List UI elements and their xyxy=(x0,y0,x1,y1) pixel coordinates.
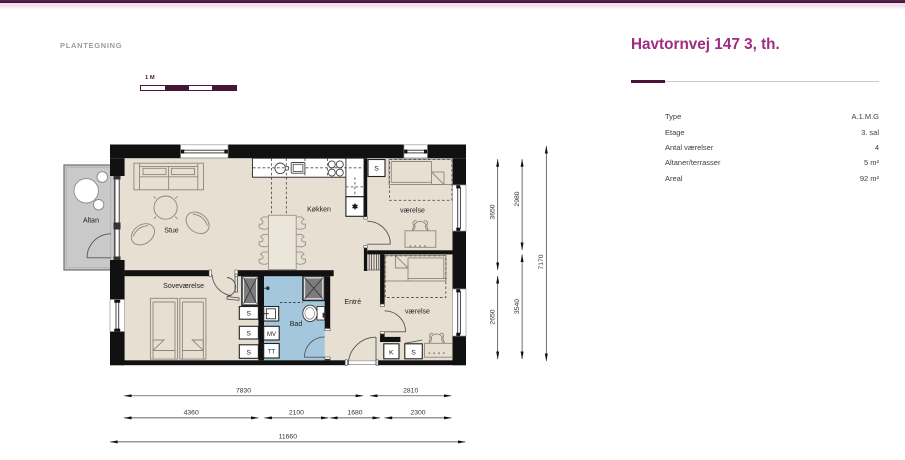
svg-text:Entré: Entré xyxy=(344,299,361,306)
svg-text:1680: 1680 xyxy=(347,409,362,416)
svg-text:Køkken: Køkken xyxy=(307,206,331,213)
svg-text:S: S xyxy=(374,166,379,173)
svg-text:7170: 7170 xyxy=(538,254,545,269)
svg-text:S: S xyxy=(247,331,252,338)
svg-text:Stue: Stue xyxy=(164,228,179,235)
svg-text:2100: 2100 xyxy=(289,409,304,416)
svg-text:7830: 7830 xyxy=(236,387,251,394)
svg-text:11660: 11660 xyxy=(279,433,298,440)
svg-text:Altan: Altan xyxy=(83,217,99,224)
svg-text:3540: 3540 xyxy=(514,299,521,314)
svg-text:3650: 3650 xyxy=(490,204,497,219)
svg-text:2810: 2810 xyxy=(403,387,418,394)
svg-text:værelse: værelse xyxy=(405,309,430,316)
svg-text:2980: 2980 xyxy=(514,191,521,206)
svg-text:MV: MV xyxy=(267,332,276,338)
svg-text:Soveværelse: Soveværelse xyxy=(163,283,204,290)
svg-text:S: S xyxy=(247,311,252,318)
svg-text:TT: TT xyxy=(268,350,276,356)
svg-text:K: K xyxy=(389,349,394,356)
svg-text:2300: 2300 xyxy=(410,409,425,416)
svg-text:S: S xyxy=(247,349,252,356)
svg-text:4360: 4360 xyxy=(184,409,199,416)
svg-text:2650: 2650 xyxy=(490,309,497,324)
svg-text:værelse: værelse xyxy=(400,207,425,214)
svg-text:S: S xyxy=(411,349,416,356)
svg-text:Bad: Bad xyxy=(290,321,303,328)
